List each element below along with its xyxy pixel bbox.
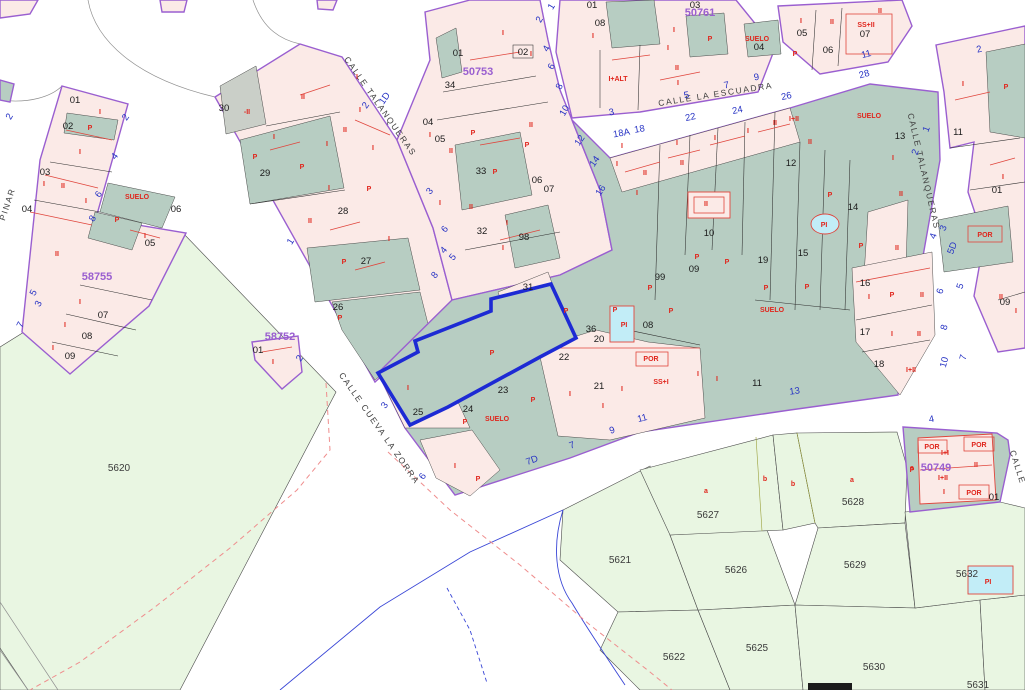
use-code-label: II: [773, 120, 777, 127]
cadastral-map[interactable]: CALLE TALANQUERASCALLE LA ESCUADRACALLE …: [0, 0, 1025, 690]
use-code-label: P: [648, 285, 653, 292]
parcel-shape[interactable]: [0, 80, 14, 102]
parcel-number-label: 01: [587, 0, 598, 11]
use-code-label: I+I: [941, 450, 949, 457]
use-code-label: I: [502, 30, 504, 37]
parcel-number-label: 15: [798, 248, 809, 259]
use-code-label: I: [326, 141, 328, 148]
use-code-label: P: [613, 307, 618, 314]
use-code-label: SUELO: [760, 307, 785, 314]
use-code-label: II: [308, 218, 312, 225]
use-code-label: I: [328, 185, 330, 192]
use-code-label: SS+I: [653, 379, 668, 386]
use-code-label: POR: [643, 356, 658, 363]
rural-parcel-number-label: 5620: [108, 463, 131, 474]
use-code-label: b: [763, 476, 767, 483]
use-code-label: POR: [966, 490, 981, 497]
use-code-label: I: [273, 134, 275, 141]
use-code-label: I: [372, 145, 374, 152]
parcel-shape[interactable]: [986, 44, 1025, 138]
house-number-label: 22: [684, 111, 697, 124]
rural-parcel-number-label: 5621: [609, 555, 632, 566]
parcel-number-label: 06: [532, 175, 543, 186]
parcel-number-label: 30: [219, 103, 230, 114]
use-code-label: I: [1015, 308, 1017, 315]
parcel-number-label: 25: [413, 407, 424, 418]
parcel-number-label: 11: [953, 127, 963, 138]
parcel-number-label: 24: [463, 404, 474, 415]
use-code-label: POR: [924, 444, 939, 451]
house-number-label: 28: [858, 68, 871, 81]
parcel-number-label: 06: [171, 204, 182, 215]
use-code-label: POR: [971, 442, 986, 449]
use-code-label: II: [61, 183, 65, 190]
house-number-label: 1: [546, 2, 558, 12]
use-code-label: II: [704, 201, 708, 208]
cadastral-map-stage: CALLE TALANQUERASCALLE LA ESCUADRACALLE …: [0, 0, 1025, 690]
parcel-number-label: 09: [689, 264, 700, 275]
use-code-label: P: [493, 169, 498, 176]
use-code-label: I+II: [906, 367, 916, 374]
use-code-label: I: [43, 181, 45, 188]
rural-parcel-number-label: 5627: [697, 510, 720, 521]
use-code-label: P: [708, 36, 713, 43]
parcel-shape[interactable]: [0, 0, 38, 18]
use-code-label: I: [667, 45, 669, 52]
parcel-number-label: 29: [260, 168, 271, 179]
use-code-label: II: [899, 191, 903, 198]
use-code-label: P: [525, 142, 530, 149]
parcel-number-label: 08: [595, 18, 606, 29]
use-code-label: PI: [821, 222, 828, 229]
rural-parcel-5631[interactable]: [980, 595, 1025, 690]
use-code-label: I: [439, 200, 441, 207]
use-code-label: P: [764, 285, 769, 292]
house-number-label: 24: [731, 104, 744, 117]
use-code-label: I: [144, 233, 146, 240]
use-code-label: I: [962, 81, 964, 88]
use-code-label: -II: [244, 109, 250, 116]
rural-parcel-number-label: 5629: [844, 560, 867, 571]
use-code-label: II: [917, 331, 921, 338]
use-code-label: I: [356, 74, 358, 81]
street-name-label: CALLE: [1008, 449, 1025, 485]
house-number-label: 26: [780, 90, 793, 103]
rural-parcel-5630[interactable]: [795, 600, 985, 690]
use-code-label: II: [895, 245, 899, 252]
parcel-number-label: 09: [65, 351, 76, 362]
parcel-number-label: 02: [63, 121, 74, 132]
use-code-label: I: [892, 155, 894, 162]
parcel-number-label: 01: [992, 185, 1003, 196]
use-code-label: SS+II: [857, 22, 874, 29]
use-code-label: a: [704, 488, 708, 495]
use-code-label: II: [878, 8, 882, 15]
use-code-label: SUELO: [857, 113, 882, 120]
use-code-label: P: [115, 217, 120, 224]
use-code-label: I: [868, 294, 870, 301]
parcel-number-label: 20: [594, 334, 605, 345]
use-code-label: I: [747, 128, 749, 135]
parcel-number-label: 99: [655, 272, 666, 283]
use-code-label: P: [859, 243, 864, 250]
use-code-label: I: [429, 132, 431, 139]
house-number-label: 5: [955, 282, 967, 290]
use-code-label: I+II: [938, 475, 948, 482]
house-number-label: 18: [633, 123, 645, 136]
use-code-label: I: [52, 345, 54, 352]
use-code-label: P: [531, 397, 536, 404]
parcel-number-label: 17: [860, 327, 871, 338]
use-code-label: P: [253, 154, 258, 161]
parcel-number-label: 32: [477, 226, 488, 237]
rural-parcel-number-label: 5630: [863, 662, 886, 673]
use-code-label: P: [300, 164, 305, 171]
use-code-label: I: [676, 140, 678, 147]
use-code-label: I: [272, 359, 274, 366]
house-number-label: 4: [928, 232, 940, 241]
parcel-number-label: 27: [361, 256, 372, 267]
parcel-number-label: 03: [690, 0, 701, 11]
use-code-label: I: [502, 245, 504, 252]
use-code-label: I: [569, 391, 571, 398]
use-code-label: I: [79, 299, 81, 306]
use-code-label: I: [716, 376, 718, 383]
rural-parcel-number-label: 5626: [725, 565, 748, 576]
house-number-label: 3: [379, 400, 391, 411]
use-code-label: b: [791, 481, 795, 488]
parcel-number-label: 26: [333, 302, 344, 313]
parcel-number-label: 01: [989, 492, 1000, 503]
use-code-label: I: [85, 198, 87, 205]
parcel-number-label: 02: [518, 47, 529, 58]
rural-parcel-number-label: 5628: [842, 497, 865, 508]
parcel-number-label: 28: [338, 206, 349, 217]
use-code-label: II: [469, 204, 473, 211]
parcel-number-label: 31: [523, 282, 534, 293]
use-code-label: I: [602, 403, 604, 410]
use-code-label: II: [449, 148, 453, 155]
use-code-label: P: [695, 254, 700, 261]
use-code-label: II: [974, 462, 978, 469]
use-code-label: II: [680, 160, 684, 167]
use-code-label: II: [529, 122, 533, 129]
parcel-number-label: 04: [423, 117, 434, 128]
use-code-label: P: [88, 125, 93, 132]
block-number-label: 50749: [921, 462, 952, 474]
use-code-label: P: [342, 259, 347, 266]
use-code-label: P: [828, 192, 833, 199]
use-code-label: P: [725, 259, 730, 266]
parcel-number-label: 07: [98, 310, 109, 321]
use-code-label: I+ALT: [608, 76, 628, 83]
parcel-number-label: 33: [476, 166, 487, 177]
parcel-number-label: 05: [435, 134, 446, 145]
parcel-number-label: 19: [758, 255, 769, 266]
parcel-number-label: 04: [754, 42, 765, 53]
parcel-number-label: 03: [40, 167, 51, 178]
parcel-number-label: 34: [445, 80, 456, 91]
stream-line: [280, 510, 563, 690]
street-name-label: PINAR: [0, 186, 17, 221]
parcel-number-label: 22: [559, 352, 570, 363]
use-code-label: a: [850, 477, 854, 484]
use-code-label: I: [64, 322, 66, 329]
use-code-label: II: [55, 251, 59, 258]
parcel-number-label: 01: [70, 95, 81, 106]
parcel-number-label: 01: [453, 48, 464, 59]
rural-parcel-number-label: 5622: [663, 652, 686, 663]
parcel-number-label: 04: [22, 204, 33, 215]
parcel-number-label: 08: [82, 331, 93, 342]
house-number-label: 13: [789, 385, 801, 397]
use-code-label: II: [920, 292, 924, 299]
parcel-number-label: 08: [643, 320, 654, 331]
use-code-label: I: [677, 80, 679, 87]
parcel-number-label: 18: [874, 359, 885, 370]
use-code-label: P: [490, 350, 495, 357]
use-code-label: I+II: [789, 116, 799, 123]
use-code-label: I: [673, 27, 675, 34]
road-edge: [88, 0, 215, 97]
use-code-label: II: [343, 127, 347, 134]
use-code-label: P: [805, 284, 810, 291]
use-code-label: I: [99, 109, 101, 116]
house-number-label: 18A: [612, 127, 631, 141]
use-code-label: P: [564, 308, 569, 315]
rural-parcel-number-label: 5632: [956, 569, 979, 580]
use-code-label: I: [800, 18, 802, 25]
use-code-label: I: [891, 331, 893, 338]
parcel-number-label: 07: [544, 184, 555, 195]
use-code-label: I: [592, 33, 594, 40]
parcel-number-label: 16: [860, 278, 871, 289]
parcel-number-label: 07: [860, 29, 871, 40]
house-number-label: 4: [928, 414, 935, 426]
use-code-label: I: [79, 149, 81, 156]
use-code-label: II: [675, 65, 679, 72]
use-code-label: II: [643, 170, 647, 177]
use-code-label: II: [830, 19, 834, 26]
block-number-label: 58752: [265, 331, 296, 343]
rural-parcel-number-label: 5625: [746, 643, 769, 654]
use-code-label: I: [530, 51, 532, 58]
block-east: [936, 26, 1025, 352]
use-code-label: I: [636, 190, 638, 197]
parcel-shape[interactable]: [606, 0, 660, 48]
rural-parcel-number-label: 5631: [967, 680, 990, 690]
use-code-label: a: [910, 465, 914, 472]
use-code-label: I: [388, 236, 390, 243]
use-code-label: PI: [985, 579, 992, 586]
use-code-label: P: [476, 476, 481, 483]
use-code-label: I: [621, 386, 623, 393]
parcel-number-label: 23: [498, 385, 509, 396]
use-code-label: I: [714, 135, 716, 142]
house-number-label: 2: [4, 112, 16, 122]
use-code-label: I: [407, 385, 409, 392]
use-code-label: I: [697, 371, 699, 378]
use-code-label: P: [793, 51, 798, 58]
parcel-number-label: 01: [253, 345, 264, 356]
use-code-label: SUELO: [745, 36, 770, 43]
use-code-label: PI: [621, 322, 628, 329]
use-code-label: P: [890, 292, 895, 299]
parcel-shape[interactable]: [317, 0, 337, 10]
parcel-number-label: 05: [145, 238, 156, 249]
building-footprint: [808, 683, 852, 690]
parcel-number-label: 14: [848, 202, 859, 213]
use-code-label: I: [621, 143, 623, 150]
parcel-number-label: 10: [704, 228, 715, 239]
house-number-label: 8: [939, 323, 951, 331]
use-code-label: SUELO: [125, 194, 150, 201]
use-code-label: I: [506, 220, 508, 227]
block-number-label: 50753: [463, 66, 494, 78]
parcel-number-label: 06: [823, 45, 834, 56]
parcel-number-label: 12: [786, 158, 797, 169]
use-code-label: P: [338, 315, 343, 322]
parcel-number-label: 05: [797, 28, 808, 39]
parcel-shape[interactable]: [160, 0, 187, 12]
use-code-label: II: [999, 294, 1003, 301]
house-number-label: 10: [938, 356, 951, 369]
parcel-number-label: 21: [594, 381, 605, 392]
parcel-number-label: 13: [895, 131, 906, 142]
use-code-label: I: [1002, 174, 1004, 181]
use-code-label: I: [616, 161, 618, 168]
parcel-shape[interactable]: [686, 13, 728, 57]
house-number-label: 6: [935, 287, 947, 295]
use-code-label: P: [367, 186, 372, 193]
use-code-label: P: [1004, 84, 1009, 91]
parcel-number-label: 98: [519, 232, 530, 243]
use-code-label: POR: [977, 232, 992, 239]
use-code-label: P: [669, 308, 674, 315]
house-number-label: 7: [958, 353, 970, 361]
use-code-label: I: [359, 107, 361, 114]
use-code-label: SUELO: [485, 416, 510, 423]
use-code-label: I: [454, 463, 456, 470]
parcel-number-label: 11: [752, 378, 762, 389]
use-code-label: II: [301, 94, 305, 101]
use-code-label: II: [808, 139, 812, 146]
use-code-label: I: [943, 489, 945, 496]
use-code-label: P: [471, 130, 476, 137]
use-code-label: P: [463, 419, 468, 426]
road-edge: [253, 0, 300, 44]
stream-dashed-line: [447, 588, 487, 683]
block-number-label: 58755: [82, 271, 113, 283]
